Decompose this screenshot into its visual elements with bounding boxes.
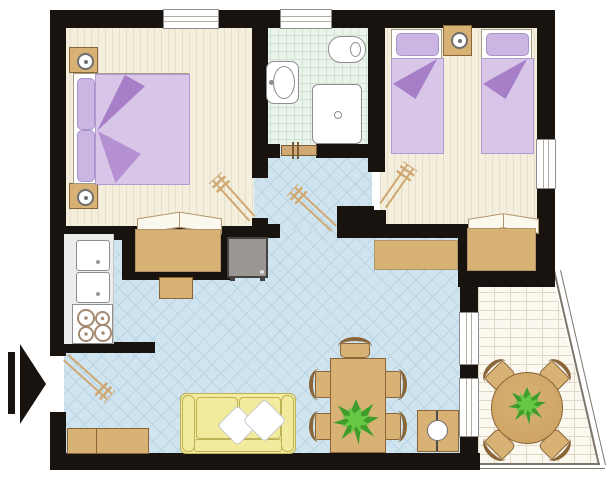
wall-hall-bottom-left xyxy=(252,224,280,238)
shower-drain xyxy=(334,111,342,119)
shower xyxy=(312,84,362,144)
kitchen-sink-unit-b xyxy=(76,272,110,303)
burner-icon xyxy=(94,324,112,342)
burner-icon xyxy=(78,326,94,342)
dressing-table xyxy=(135,229,221,272)
wall-terrace-pier-c xyxy=(460,437,478,470)
washbasin xyxy=(266,61,299,104)
sink-drain xyxy=(96,292,100,296)
double-bed-blanket xyxy=(95,74,190,185)
toilet xyxy=(328,36,366,63)
wall-hall-pier xyxy=(337,206,374,238)
entrance-arrow-icon xyxy=(20,344,46,424)
tv-foot xyxy=(230,276,235,281)
lamp-icon xyxy=(77,189,94,206)
wall-terrace-pier-a xyxy=(460,287,478,312)
bathroom-door xyxy=(281,145,317,156)
nightstand-twin xyxy=(443,25,472,56)
washbasin-tap xyxy=(269,80,274,85)
terrace-rail-bottom-outer xyxy=(478,468,605,469)
nightstand-bottom xyxy=(69,183,98,209)
washbasin-bowl xyxy=(273,66,295,99)
dresser-twin xyxy=(467,228,536,271)
single-bed-right-pillow xyxy=(486,33,529,56)
wall-living-top xyxy=(374,224,462,238)
wall-bath-twin xyxy=(368,26,385,172)
wall-terrace-pier-b xyxy=(460,365,478,378)
window-terrace-lower xyxy=(459,378,479,437)
side-table-lamp xyxy=(427,420,448,441)
window-bathroom xyxy=(280,9,332,29)
stool xyxy=(159,277,193,299)
wall-bath-bottom-left xyxy=(252,144,280,158)
window-terrace-upper xyxy=(459,312,479,365)
window-double-bedroom xyxy=(163,9,219,29)
sideboard xyxy=(374,240,458,270)
kitchen-sink-unit-a xyxy=(76,240,110,271)
entry-bench xyxy=(67,428,149,454)
double-bed-pillow-a xyxy=(77,78,95,130)
nightstand-top xyxy=(69,47,98,73)
entrance-arrow-bar xyxy=(8,352,15,414)
sofa xyxy=(180,393,296,454)
stove xyxy=(72,304,113,344)
toilet-cistern xyxy=(350,42,361,57)
tv-foot xyxy=(260,276,265,281)
wall-bath-bottom-right xyxy=(316,144,368,158)
burner-icon xyxy=(77,309,95,327)
dining-chair-top xyxy=(338,337,372,358)
sink-drain xyxy=(96,260,100,264)
double-bed-pillow-b xyxy=(77,130,95,182)
window-twin-bedroom xyxy=(536,139,556,189)
tv-set xyxy=(227,237,268,278)
single-bed-left-pillow xyxy=(396,33,439,56)
wall-bottom xyxy=(50,453,480,470)
bench-divider xyxy=(96,429,97,453)
lamp-icon xyxy=(77,53,94,70)
floor-plan xyxy=(0,0,616,480)
lamp-icon xyxy=(451,32,468,49)
tv-knob xyxy=(260,270,264,274)
